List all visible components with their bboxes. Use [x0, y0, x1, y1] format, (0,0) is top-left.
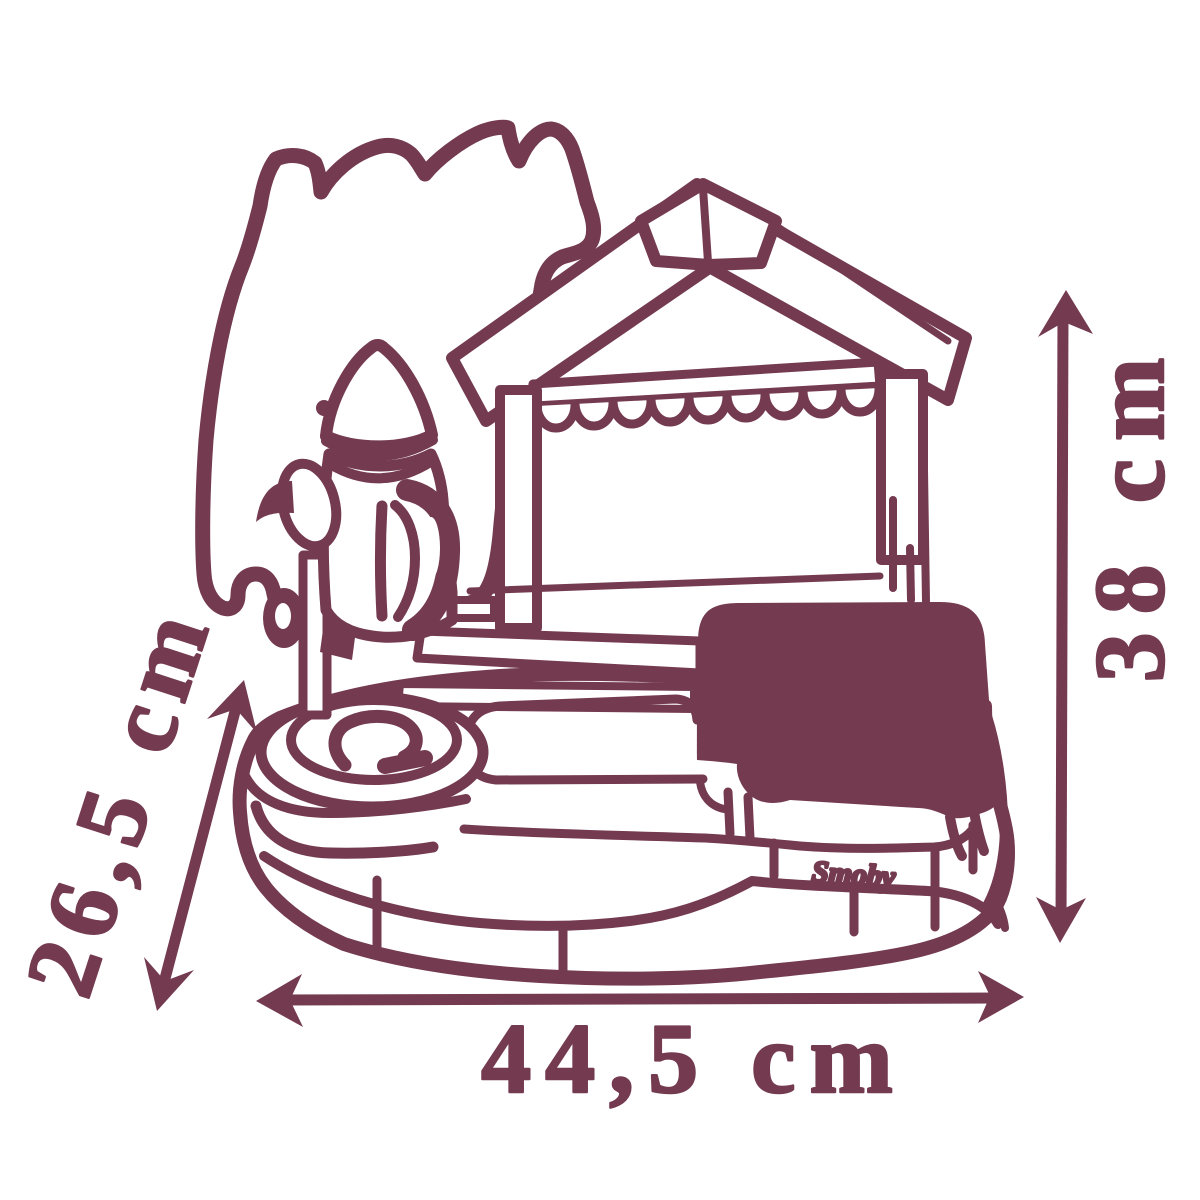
svg-text:38 cm: 38 cm: [1074, 340, 1185, 683]
svg-text:44,5 cm: 44,5 cm: [481, 1003, 907, 1114]
svg-text:Smoby: Smoby: [811, 855, 897, 894]
